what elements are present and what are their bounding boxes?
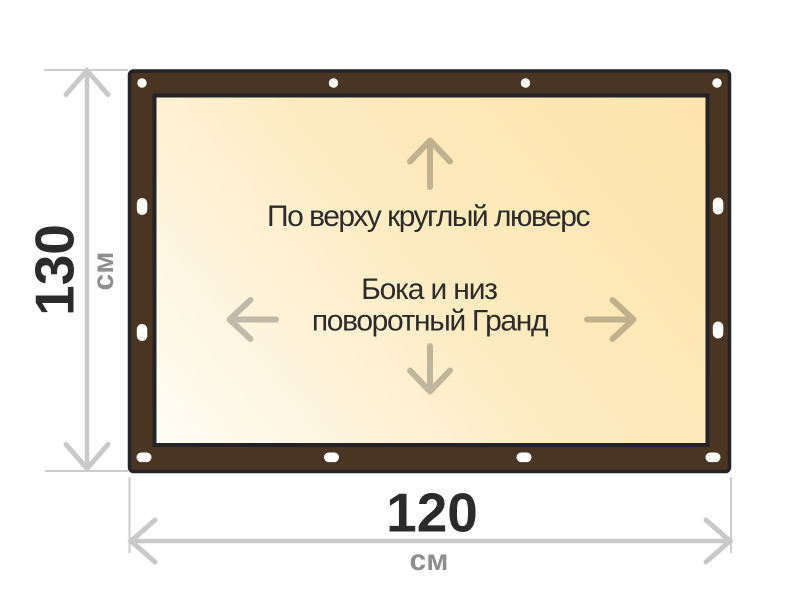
svg-text:120: 120 xyxy=(386,482,478,544)
svg-text:см: см xyxy=(87,252,120,291)
svg-text:По верху круглый люверс: По верху круглый люверс xyxy=(267,200,590,233)
svg-text:поворотный Гранд: поворотный Гранд xyxy=(312,305,548,338)
svg-text:см: см xyxy=(410,544,449,577)
svg-text:130: 130 xyxy=(24,224,86,316)
svg-text:Бока и низ: Бока и низ xyxy=(361,273,497,306)
